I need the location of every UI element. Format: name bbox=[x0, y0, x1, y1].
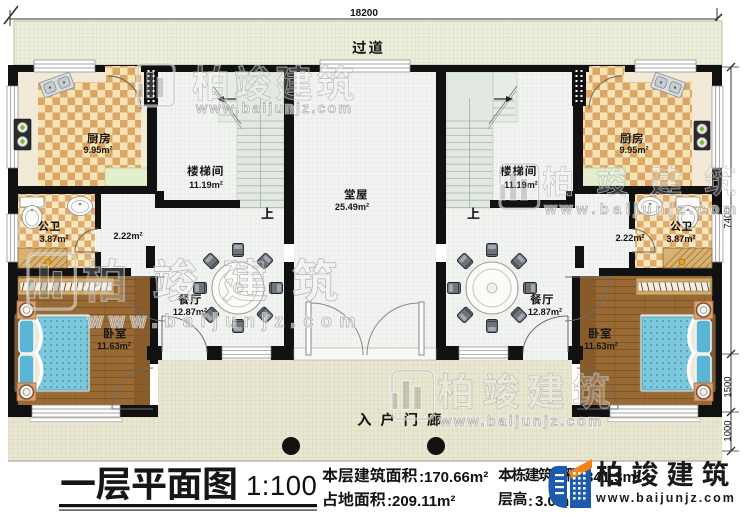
svg-text:9.95m²: 9.95m² bbox=[83, 145, 112, 155]
svg-text:2.22m²: 2.22m² bbox=[615, 233, 644, 243]
svg-text:www.baijunjz.com: www.baijunjz.com bbox=[544, 202, 741, 218]
svg-text:18200: 18200 bbox=[350, 8, 378, 19]
svg-text:2.22m²: 2.22m² bbox=[113, 231, 142, 241]
svg-text:www.baijunjz.com: www.baijunjz.com bbox=[87, 310, 363, 331]
svg-text:www.baijunjz.com: www.baijunjz.com bbox=[439, 414, 604, 430]
svg-text:3.87m²: 3.87m² bbox=[39, 234, 68, 244]
svg-text:11.19m²: 11.19m² bbox=[189, 180, 223, 190]
svg-text:209.11m²: 209.11m² bbox=[392, 493, 455, 510]
svg-text:www.baijunjz.com: www.baijunjz.com bbox=[195, 101, 353, 117]
svg-text:www.baijunjz.com: www.baijunjz.com bbox=[595, 491, 736, 505]
svg-text:9.95m²: 9.95m² bbox=[619, 145, 648, 155]
svg-text:1:100: 1:100 bbox=[246, 470, 317, 501]
svg-text:170.66m²: 170.66m² bbox=[424, 469, 488, 486]
svg-text:1500: 1500 bbox=[723, 376, 734, 397]
svg-text:11.63m²: 11.63m² bbox=[584, 341, 618, 351]
svg-text:11.63m²: 11.63m² bbox=[97, 341, 131, 351]
svg-text:12.87m²: 12.87m² bbox=[528, 307, 562, 317]
svg-text:3.87m²: 3.87m² bbox=[666, 234, 695, 244]
svg-text:1000: 1000 bbox=[723, 420, 734, 441]
svg-text:25.49m²: 25.49m² bbox=[335, 202, 369, 212]
svg-text::: : bbox=[528, 493, 533, 510]
